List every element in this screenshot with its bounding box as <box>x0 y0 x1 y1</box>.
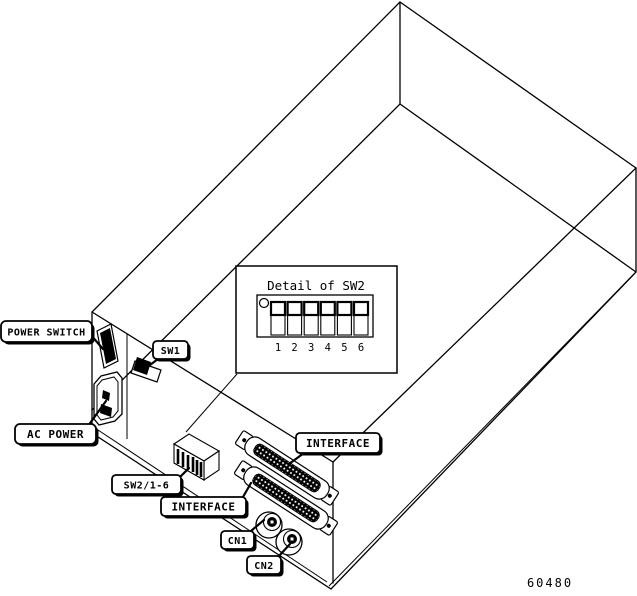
device-rear-view-figure: Detail of SW2 1 2 3 4 5 6 <box>0 0 637 596</box>
callout-sw1: SW1 <box>153 341 191 362</box>
callout-cn2: CN2 <box>247 556 284 577</box>
dip-switch-4-knob <box>321 302 335 315</box>
dip-number-3: 3 <box>308 342 314 354</box>
dip-switch-3-knob <box>304 302 318 315</box>
callout-cn1: CN1 <box>221 531 257 552</box>
cn1-keyway <box>271 521 274 524</box>
detail-inset-title: Detail of SW2 <box>267 278 365 293</box>
callout-label-ac-power: AC POWER <box>27 428 84 441</box>
ac-power-inlet <box>94 372 122 425</box>
cn2-keyway <box>291 538 294 541</box>
dip-switch-2-knob <box>288 302 302 315</box>
dip-switch-6-knob <box>354 302 368 315</box>
dip-switch-index-mark <box>260 299 269 308</box>
callout-label-cn2: CN2 <box>254 561 274 572</box>
cn2-connector <box>276 529 302 555</box>
callout-label-power-switch: POWER SWITCH <box>7 328 85 339</box>
callout-power-switch: POWER SWITCH <box>1 321 95 345</box>
dip-number-6: 6 <box>358 342 364 354</box>
callout-label-cn1: CN1 <box>228 536 248 547</box>
callout-interface-bottom: INTERFACE <box>161 497 249 519</box>
dip-switch-1-knob <box>271 302 285 315</box>
rear-view-diagram: Detail of SW2 1 2 3 4 5 6 <box>0 0 637 596</box>
callout-label-interface-top: INTERFACE <box>306 437 370 450</box>
dip-number-4: 4 <box>325 342 331 354</box>
callout-sw2-1-6: SW2/1-6 <box>112 475 184 497</box>
callout-label-interface-bottom: INTERFACE <box>171 501 235 514</box>
callout-interface-top: INTERFACE <box>296 433 383 456</box>
callout-ac-power: AC POWER <box>15 424 99 447</box>
dip-switch-5-knob <box>337 302 351 315</box>
dip-number-5: 5 <box>341 342 347 354</box>
figure-number: 60480 <box>527 576 573 590</box>
dip-number-1: 1 <box>275 342 281 354</box>
dip-number-2: 2 <box>291 342 297 354</box>
callout-label-sw2: SW2/1-6 <box>124 481 170 492</box>
callout-label-sw1: SW1 <box>161 346 181 357</box>
